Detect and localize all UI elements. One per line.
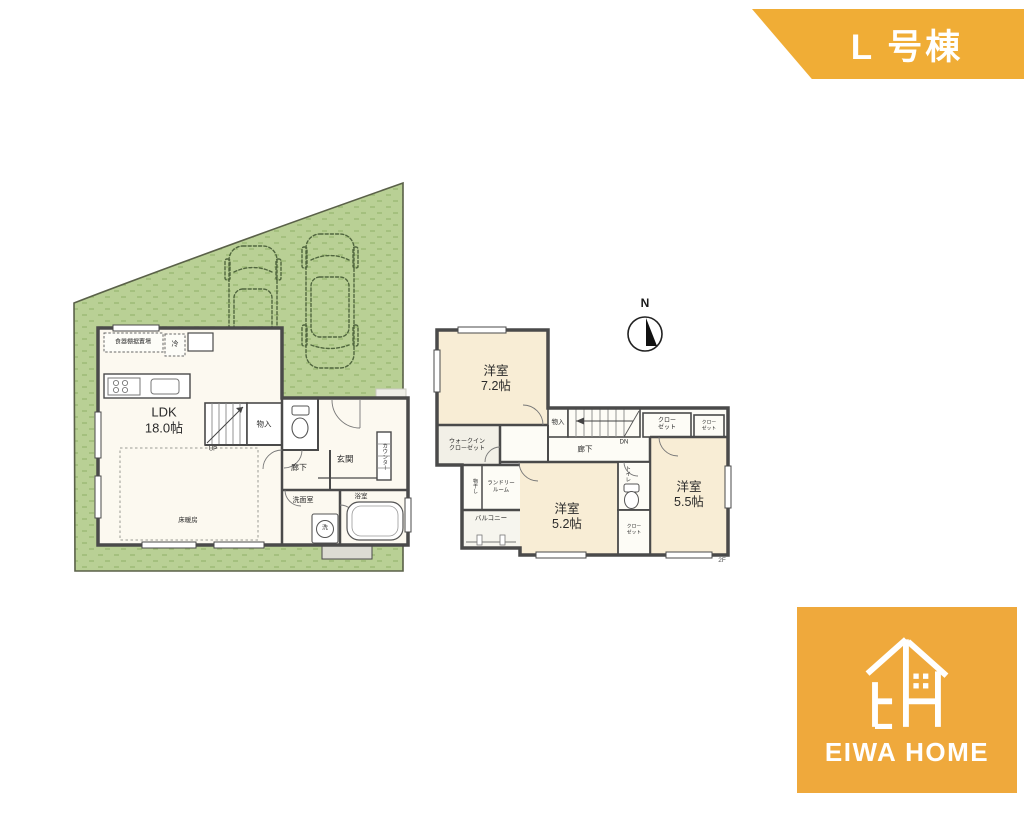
ldk-name: LDK [145, 404, 183, 420]
fridge-label: 冷 [172, 341, 179, 349]
north-label: N [641, 296, 650, 310]
building-banner-label: L 号棟 [851, 19, 963, 70]
laundry-line1: ランドリー [487, 480, 515, 487]
stairs-dn-label: DN [620, 439, 629, 446]
wic-label: ウォークイン クローゼット [449, 439, 485, 453]
bedroom3-name: 洋室 [674, 480, 704, 495]
floor2-tag: 2F [718, 557, 726, 565]
wic-line2: クローゼット [449, 446, 485, 453]
closet-b-line1: クロー [702, 420, 716, 426]
washroom-label: 洗面室 [293, 497, 314, 505]
drying-label: 物干し [472, 479, 478, 494]
hallway-2f-label: 廊下 [578, 445, 593, 454]
entrance-counter-label: カウンター [381, 443, 388, 471]
bedroom1-size: 7.2帖 [481, 379, 511, 394]
closet-c-label: クロー ゼット [627, 524, 641, 536]
bathroom-label: 浴室 [355, 493, 368, 501]
closet-a-line2: ゼット [658, 425, 676, 432]
bedroom2-label: 洋室 5.2帖 [552, 502, 582, 532]
bedroom2-size: 5.2帖 [552, 517, 582, 532]
closet-c-line1: クロー [627, 524, 641, 530]
washer-label: 洗 [322, 525, 328, 532]
floorplan-page: L 号棟 N 食器棚据置場 冷 LDK 18.0帖 床暖房 UP 物入 廊下 玄… [0, 0, 1024, 823]
laundry-line2: ルーム [487, 487, 515, 494]
north-arrow-icon [628, 317, 662, 351]
storage-2f-label: 物入 [552, 419, 565, 427]
storage-1f-label: 物入 [257, 420, 272, 429]
bedroom2-name: 洋室 [552, 502, 582, 517]
eiwa-home-logo-icon [853, 633, 961, 729]
closet-a-label: クロー ゼット [658, 418, 676, 432]
balcony-label: バルコニー [475, 515, 507, 523]
ldk-size: 18.0帖 [145, 420, 183, 436]
closet-b-line2: ゼット [702, 426, 716, 432]
ldk-label: LDK 18.0帖 [145, 404, 183, 435]
dish-cabinet-label: 食器棚据置場 [115, 339, 151, 346]
bedroom3-label: 洋室 5.5帖 [674, 480, 704, 510]
closet-c-line2: ゼット [627, 530, 641, 536]
entrance-label: 玄関 [336, 454, 353, 464]
closet-b-label: クロー ゼット [702, 420, 716, 432]
bedroom1-name: 洋室 [481, 364, 511, 379]
toilet-2f-label: トイレ [624, 466, 631, 483]
company-logo: EIWA HOME [797, 607, 1017, 793]
stairs-up-label: UP [209, 446, 217, 453]
floor-heating-label: 床暖房 [178, 517, 198, 525]
hallway-1f-label: 廊下 [291, 463, 307, 473]
bedroom1-label: 洋室 7.2帖 [481, 364, 511, 394]
company-logo-wordmark: EIWA HOME [825, 737, 989, 768]
bedroom3-size: 5.5帖 [674, 495, 704, 510]
laundry-label: ランドリー ルーム [487, 480, 515, 493]
